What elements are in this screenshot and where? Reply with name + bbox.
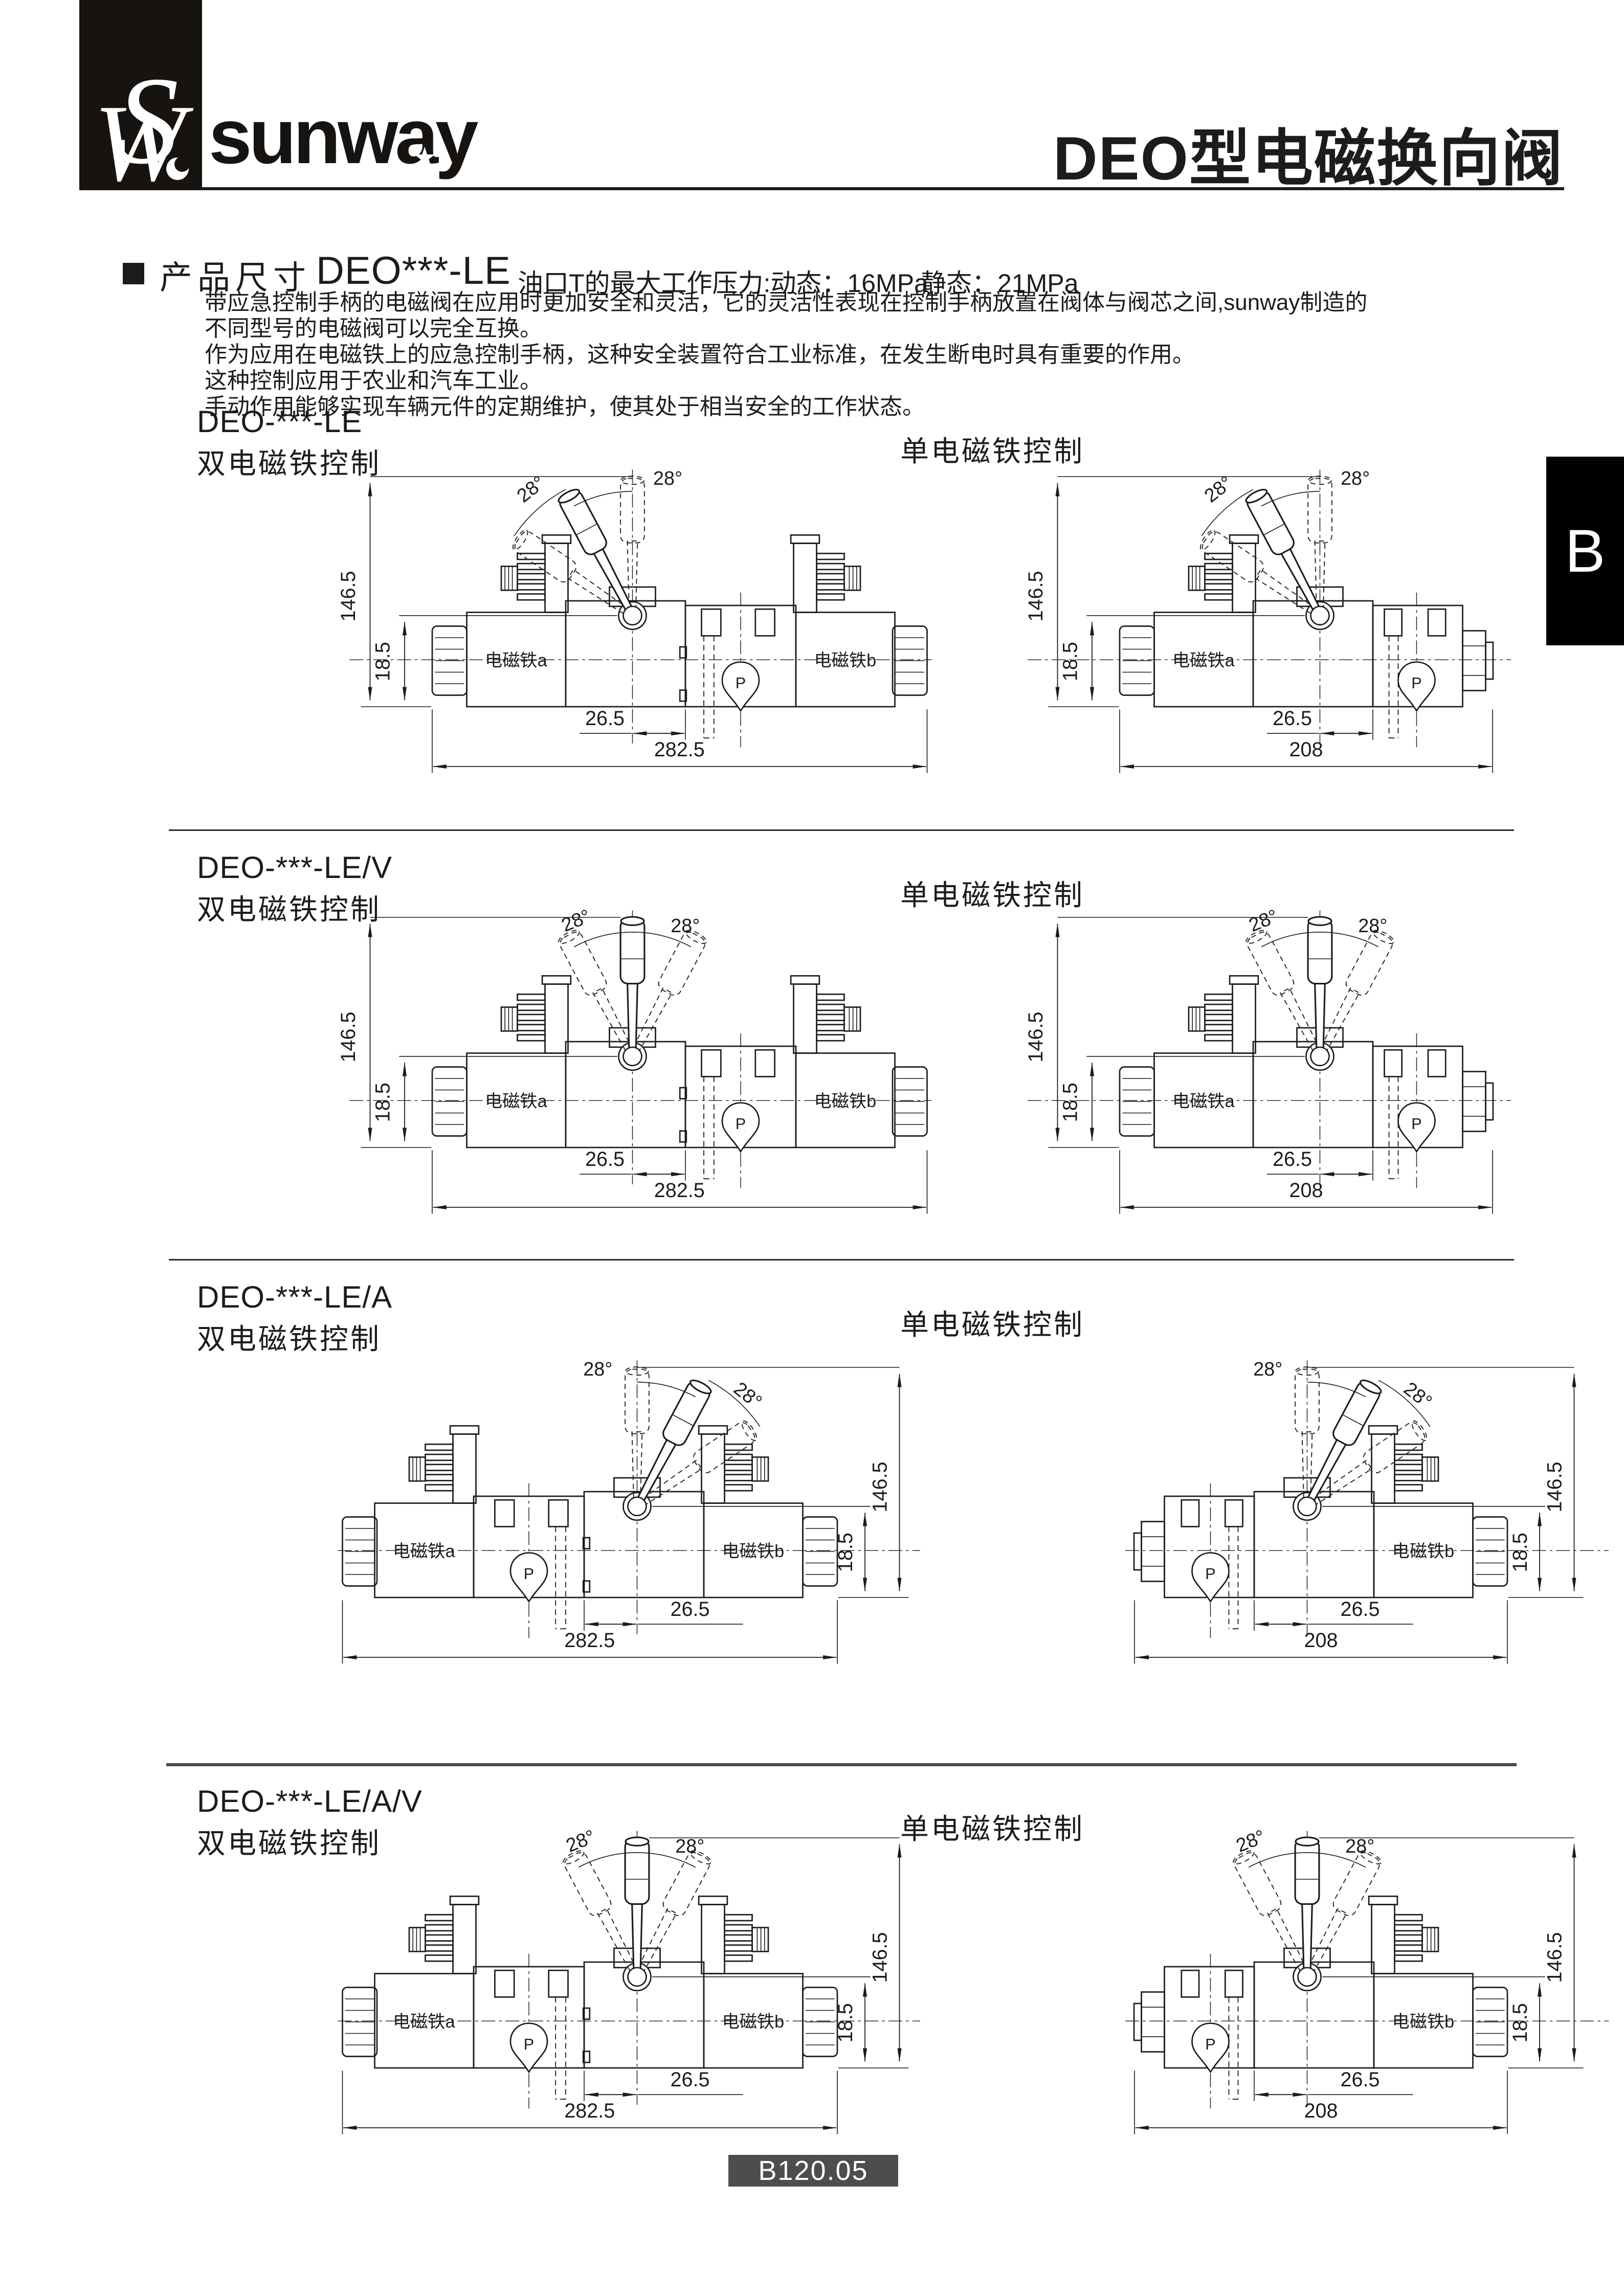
angle-label: 28° xyxy=(1345,1836,1374,1857)
emergency-handle xyxy=(1308,917,1332,1056)
angle-label: 28° xyxy=(1200,472,1237,507)
dim-208: 208 xyxy=(1289,1179,1323,1202)
header-rule xyxy=(199,187,1564,190)
description-line: 这种控制应用于农业和汽车工业。 xyxy=(205,368,1367,394)
angle-label: 28° xyxy=(513,472,549,507)
solenoid-a-label: 电磁铁a xyxy=(485,651,548,670)
solenoid-a-label: 电磁铁a xyxy=(1172,1092,1235,1111)
angle-label: 28° xyxy=(1233,1826,1269,1857)
emergency-handle xyxy=(625,1837,649,1977)
description-line: 带应急控制手柄的电磁阀在应用时更加安全和灵活，它的灵活性表现在控制手柄放置在阀体… xyxy=(205,289,1367,316)
dim-26-5: 26.5 xyxy=(585,707,625,730)
angle-label: 28° xyxy=(671,915,700,937)
dim-26-5: 26.5 xyxy=(1340,2068,1380,2091)
side-tab-label: B xyxy=(1565,516,1606,586)
section1-model: DEO-***-LE xyxy=(197,404,362,439)
section-separator xyxy=(169,1259,1514,1260)
p-port-label: P xyxy=(1205,1565,1215,1583)
solenoid-b-label: 电磁铁b xyxy=(1392,1542,1455,1561)
solenoid-a-label: 电磁铁a xyxy=(485,1092,548,1111)
dim-146-5: 146.5 xyxy=(337,571,360,621)
p-port-label: P xyxy=(524,2036,534,2053)
dim-146-5: 146.5 xyxy=(337,1011,360,1062)
dim-208: 208 xyxy=(1304,2100,1338,2122)
section-separator xyxy=(169,829,1514,831)
dim-18-5: 18.5 xyxy=(1509,1533,1531,1572)
angle-label: 28° xyxy=(1246,906,1281,936)
dim-26-5: 26.5 xyxy=(670,2068,709,2091)
description-line: 作为应用在电磁铁上的应急控制手柄，这种安全装置符合工业标准，在发生断电时具有重要… xyxy=(205,342,1367,368)
dim-26-5: 26.5 xyxy=(1273,1148,1312,1170)
drawing-le-double: 146.5 18.5 26.5 282.5 28° 28° 电磁铁a 电磁铁b … xyxy=(336,449,934,799)
dim-146-5: 146.5 xyxy=(1025,1011,1047,1062)
dim-18-5: 18.5 xyxy=(371,642,394,681)
section-bullet xyxy=(123,263,144,284)
solenoid-b-label: 电磁铁b xyxy=(722,2012,785,2032)
angle-label: 28° xyxy=(729,1378,766,1413)
section-separator-thick xyxy=(166,1763,1517,1766)
drawing-lea-double: 146.5 18.5 26.5 282.5 28° 28° 电磁铁a 电磁铁b … xyxy=(336,1340,934,1690)
logo-block: W S xyxy=(79,0,202,190)
dim-146-5: 146.5 xyxy=(1025,571,1047,621)
dim-26-5: 26.5 xyxy=(1340,1598,1380,1620)
angle-label: 28° xyxy=(1358,915,1387,937)
solenoid-a-label: 电磁铁a xyxy=(393,1542,456,1561)
product-model: DEO***-LE xyxy=(316,249,511,293)
p-port-label: P xyxy=(736,674,746,692)
logo-monogram: W S xyxy=(79,0,202,190)
dim-18-5: 18.5 xyxy=(1509,2003,1531,2042)
drawing-leav-double: 146.5 18.5 26.5 282.5 28° 28° 电磁铁a 电磁铁b … xyxy=(336,1810,934,2160)
solenoid-a-label: 电磁铁a xyxy=(1172,651,1235,670)
solenoid-b-label: 电磁铁b xyxy=(814,1092,877,1111)
drawing-lev-double: 146.5 18.5 26.5 282.5 28° 28° 电磁铁a 电磁铁b … xyxy=(336,890,934,1240)
solenoid-b-label: 电磁铁b xyxy=(814,651,877,670)
p-port-label: P xyxy=(1205,2036,1215,2053)
page-title: DEO型电磁换向阀 xyxy=(1053,108,1564,197)
logo-star-icon: ★ xyxy=(412,141,437,173)
solenoid-b-label: 电磁铁b xyxy=(722,1542,785,1561)
p-port-label: P xyxy=(1411,674,1421,692)
solenoid-b-label: 电磁铁b xyxy=(1392,2012,1455,2032)
emergency-handle xyxy=(1295,1837,1319,1977)
dim-18-5: 18.5 xyxy=(834,1533,857,1572)
page-number: B120.05 xyxy=(758,2155,868,2187)
angle-label: 28° xyxy=(563,1826,598,1857)
drawing-leav-single: 146.5 18.5 26.5 208 28° 28° 电磁铁b P xyxy=(1125,1810,1622,2160)
dim-208: 208 xyxy=(1304,1629,1338,1652)
dim-146-5: 146.5 xyxy=(869,1461,891,1512)
drawing-lea-single: 146.5 18.5 26.5 208 28° 28° 电磁铁b P xyxy=(1125,1340,1622,1690)
side-tab-b: B xyxy=(1546,457,1624,645)
dim-146-5: 146.5 xyxy=(1543,1932,1566,1983)
dim-26-5: 26.5 xyxy=(670,1598,709,1620)
drawing-lev-single: 146.5 18.5 26.5 208 28° 28° 电磁铁a P xyxy=(1023,890,1520,1240)
datasheet-page: W S sunway ★ DEO型电磁换向阀 B 产品尺寸 DEO***-LE … xyxy=(0,0,1624,2296)
dim-18-5: 18.5 xyxy=(1059,642,1081,681)
dim-26-5: 26.5 xyxy=(585,1148,625,1170)
product-description: 带应急控制手柄的电磁阀在应用时更加安全和灵活，它的灵活性表现在控制手柄放置在阀体… xyxy=(205,289,1367,420)
solenoid-a-label: 电磁铁a xyxy=(393,2012,456,2032)
p-port-label: P xyxy=(1411,1115,1421,1133)
section3-single-label: 单电磁铁控制 xyxy=(900,1302,1084,1343)
p-port-label: P xyxy=(524,1565,534,1583)
angle-label: 28° xyxy=(559,906,594,936)
dim-282-5: 282.5 xyxy=(654,738,705,761)
description-line: 手动作用能够实现车辆元件的定期维护，使其处于相当安全的工作状态。 xyxy=(205,394,1367,420)
dim-282-5: 282.5 xyxy=(564,1629,615,1652)
emergency-handle xyxy=(620,917,644,1056)
dim-26-5: 26.5 xyxy=(1273,707,1312,730)
angle-label: 28° xyxy=(675,1836,704,1857)
page-number-badge: B120.05 xyxy=(728,2155,898,2187)
p-port-label: P xyxy=(736,1115,746,1133)
dim-282-5: 282.5 xyxy=(564,2100,615,2122)
angle-label: 28° xyxy=(583,1359,612,1380)
dim-282-5: 282.5 xyxy=(654,1179,705,1202)
drawing-le-single: 146.5 18.5 26.5 208 28° 28° 电磁铁a P xyxy=(1023,449,1520,799)
section2-model: DEO-***-LE/V xyxy=(197,850,392,885)
description-line: 不同型号的电磁阀可以完全互换。 xyxy=(205,316,1367,342)
section3-model: DEO-***-LE/A xyxy=(197,1279,392,1315)
dim-208: 208 xyxy=(1289,738,1323,761)
angle-label: 28° xyxy=(1399,1378,1436,1413)
angle-label: 28° xyxy=(1341,468,1370,489)
angle-label: 28° xyxy=(1253,1359,1282,1380)
dim-18-5: 18.5 xyxy=(1059,1083,1081,1122)
dim-18-5: 18.5 xyxy=(834,2003,857,2042)
dim-146-5: 146.5 xyxy=(1543,1461,1566,1512)
angle-label: 28° xyxy=(653,468,682,489)
dim-18-5: 18.5 xyxy=(371,1083,394,1122)
dim-146-5: 146.5 xyxy=(869,1932,891,1983)
